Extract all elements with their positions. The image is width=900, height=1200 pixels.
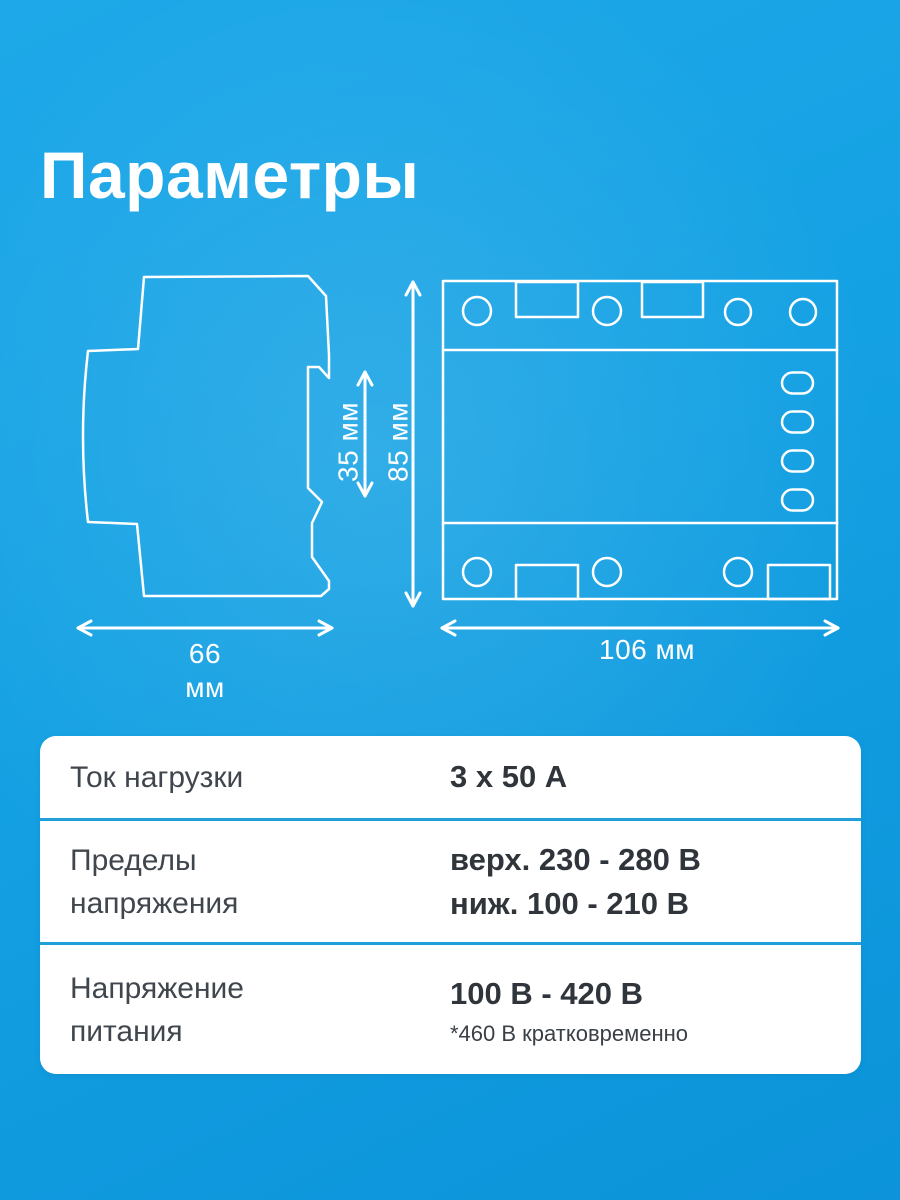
spec-label-line: напряжения [70,882,450,925]
dimension-106mm-label: 106 мм [599,634,695,665]
spec-value: 100 В - 420 В [450,972,841,1016]
spec-value: 3 x 50 А [450,755,841,799]
terminal-screw-icon [463,558,491,586]
terminal-screw-icon [724,558,752,586]
spec-value: верх. 230 - 280 В [450,838,841,882]
spec-value: ниж. 100 - 210 В [450,882,841,926]
terminal-slot [516,565,578,599]
spec-label-line: Напряжение [70,967,450,1010]
infographic-canvas: Параметры [0,0,900,1200]
dimension-66mm: 66 мм [78,621,332,703]
spec-label: Пределы напряжения [70,839,450,925]
specs-card: Ток нагрузки 3 x 50 А Пределы напряжения… [40,736,861,1074]
spec-label: Напряжение питания [70,967,450,1053]
front-view-body [443,281,837,599]
spec-row-supply-voltage: Напряжение питания 100 В - 420 В *460 В … [40,942,861,1074]
dimension-106mm: 106 мм [442,621,838,665]
terminal-slot [516,282,578,317]
dimension-35mm: 35 мм [332,372,372,496]
spec-row-load-current: Ток нагрузки 3 x 50 А [40,736,861,818]
spec-footnote: *460 В кратковременно [450,1020,841,1048]
terminal-screw-icon [790,299,816,325]
dimension-35mm-label: 35 мм [332,402,363,482]
side-view-outline [83,276,329,596]
spec-values: 3 x 50 А [450,755,841,799]
terminal-slot [642,282,703,317]
spec-label-line: Пределы [70,839,450,882]
spec-values: 100 В - 420 В *460 В кратковременно [450,972,841,1048]
terminal-screw-icon [725,299,751,325]
indicator-pill [782,490,813,511]
spec-label-line: Ток нагрузки [70,756,450,799]
indicator-pill [782,412,813,433]
spec-values: верх. 230 - 280 В ниж. 100 - 210 В [450,838,841,926]
dimensions-diagram: 35 мм 85 мм 66 мм 106 мм [0,0,900,720]
side-view-body [83,276,329,596]
spec-label-line: питания [70,1010,450,1053]
spec-row-voltage-limits: Пределы напряжения верх. 230 - 280 В ниж… [40,818,861,942]
dimension-85mm-label: 85 мм [382,402,413,482]
terminal-screw-icon [593,297,621,325]
front-view-outline [443,281,837,599]
dimension-66mm-value: 66 [189,638,221,669]
terminal-screw-icon [463,297,491,325]
dimension-66mm-unit: мм [185,672,225,703]
spec-label: Ток нагрузки [70,756,450,799]
dimension-85mm: 85 мм [382,282,420,606]
indicator-pill [782,373,813,394]
terminal-slot [768,565,830,599]
terminal-screw-icon [593,558,621,586]
indicator-pill [782,451,813,472]
